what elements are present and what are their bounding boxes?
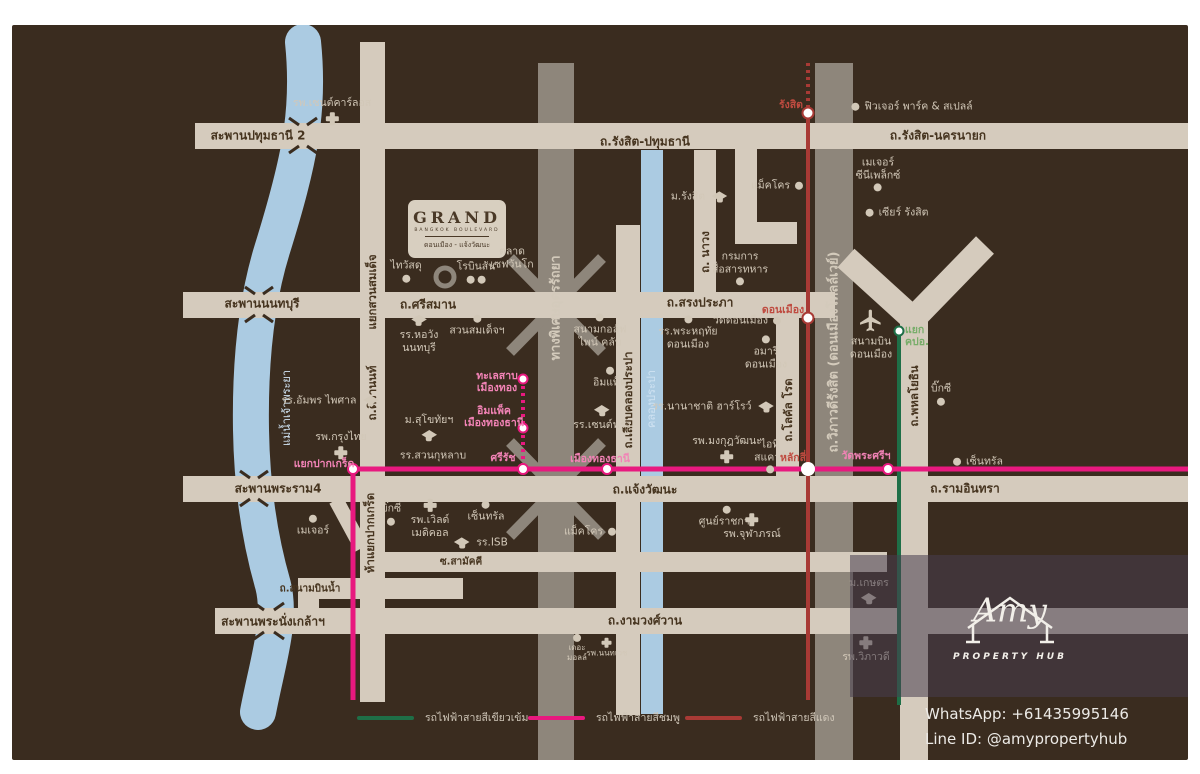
road-label-phahonyothin: ถ.พหลโยธิน: [905, 365, 923, 426]
poi-wat-donmueang: วัดดอนเมือง: [713, 315, 781, 328]
poi-major-left: เมเจอร์: [297, 515, 329, 538]
hospital-cross-icon: [334, 446, 347, 459]
graduation-cap-icon: [757, 401, 776, 414]
poi-mongkut: รพ.มงกุฎวัฒนะ: [692, 435, 762, 463]
place-dot-icon: [736, 278, 744, 286]
poi-nonthavej: รพ.นนทเวช: [587, 638, 628, 659]
road-label-rangsit-pathumthani: ถ.รังสิต-ปทุมธานี: [600, 133, 690, 152]
place-dot-icon: [937, 397, 945, 405]
graduation-cap-icon: [593, 404, 612, 417]
river-label-chao-phraya: แม่น้ำเจ้าพระยา: [278, 370, 296, 446]
poi-save-one-go: ตลาด เซฟวันโก: [490, 245, 533, 270]
poi-the-mall: เดอะ มอลล์: [567, 634, 587, 662]
legend-label: รถไฟฟ้าสายสีชมพู: [596, 709, 680, 726]
poi-amari: อมารี ดอนเมือง: [745, 335, 787, 370]
poi-krungthai: รพ.กรุงไทย: [315, 431, 366, 459]
poi-major-cineplex: เมเจอร์ ซีนีเพล็กซ์: [856, 156, 901, 191]
place-dot-icon: [473, 315, 481, 323]
place-dot-icon: [953, 458, 961, 466]
poi-st-francis: รร.เซนต์ฟรัง: [573, 404, 631, 432]
legend-label: รถไฟฟ้าสายสีแดง: [753, 709, 835, 726]
graduation-cap-icon: [710, 191, 729, 204]
pink-line-swatch-icon: [528, 716, 585, 720]
poi-suan-somdet: สวนสมเด็จฯ: [449, 315, 504, 338]
road-label-songprapha: ถ.สรงประภา: [667, 294, 734, 313]
brand-divider: [425, 236, 489, 237]
station-label-yaek-kpo: แยก คปอ.: [905, 324, 929, 348]
road-label-sanambin-nam: ถ.สนามบินน้ำ: [280, 582, 341, 597]
station-label-wat-phra-si: วัดพระศรีฯ: [841, 450, 890, 462]
hospital-cross-icon: [746, 513, 759, 526]
place-dots-icon: [467, 275, 486, 283]
road-label-ramindra: ถ.รามอินทรา: [930, 480, 999, 499]
poi-amphorn: รร.อัมพร ไพศาล: [282, 395, 381, 408]
road-label-srisaman: ถ.ศรีสมาน: [400, 296, 456, 315]
poi-big-c-right: บิ๊กซี: [931, 383, 951, 406]
poi-impact: อิมแพ็ค: [593, 367, 627, 390]
hospital-cross-icon: [721, 450, 734, 463]
poi-future-park: ฟิวเจอร์ พาร์ค & สเปลล์: [851, 101, 972, 114]
station-label-impact-mueang-thong: อิมแพ็ค เมืองทองธานี: [464, 405, 524, 429]
place-dot-icon: [608, 528, 616, 536]
legend-label: รถไฟฟ้าสายสีเขียวเข้ม: [425, 709, 528, 726]
road-label-yaek-suan-somdet: แยกสวนสมเด็จ: [363, 254, 381, 329]
hospital-cross-icon: [423, 499, 436, 512]
road-label-tiwanon: ถ.ติวานนท์: [363, 365, 381, 420]
place-dot-icon: [482, 501, 490, 509]
hospital-cross-icon: [325, 112, 338, 125]
poi-chulabhorn: รพ.จุฬาภรณ์: [723, 513, 780, 541]
station-label-si-rat: ศรีรัช: [490, 452, 515, 464]
poi-harrow: รร.นานาชาติ ฮาร์โรว์: [652, 401, 775, 414]
place-dot-icon: [766, 466, 774, 474]
road-label-chaengwatthana: ถ.แจ้งวัฒนะ: [613, 481, 678, 500]
station-label-lake-mueang-thong: ทะเลสาบ เมืองทอง: [476, 370, 518, 394]
station-label-lak-si: หลักสี่: [780, 452, 806, 464]
hospital-cross-icon: [602, 638, 612, 648]
road-label-phranangklao-bridge: สะพานพระนั่งเกล้าฯ: [221, 613, 325, 632]
contact-whatsapp: WhatsApp: +61435995146: [925, 705, 1129, 723]
graduation-cap-icon: [452, 537, 471, 550]
road-label-rangsit-nakhonnayok: ถ.รังสิต-นครนายก: [890, 127, 986, 146]
station-label-pak-kret: แยกปากเกร็ด: [294, 458, 355, 470]
poi-makro-bottom: แม็คโคร: [564, 526, 616, 539]
graduation-cap-icon: [361, 395, 380, 408]
legend-item-green-line: รถไฟฟ้าสายสีเขียวเข้ม: [357, 709, 528, 726]
place-dot-icon: [596, 313, 604, 321]
poi-m-rangsit: ม.รังสิต: [671, 191, 729, 204]
poi-suan-kularb: รร.สวนกุหลาบ: [400, 450, 466, 463]
place-dot-icon: [851, 103, 859, 111]
road-label-ngamwongwan: ถ.งามวงศ์วาน: [608, 612, 682, 631]
poi-central-right: เซ็นทรัล: [953, 456, 1003, 469]
station-label-mueang-thong-thani: เมืองทองธานี: [570, 453, 630, 465]
green-line-swatch-icon: [357, 716, 414, 720]
brand-subtitle: BANGKOK BOULEVARD: [414, 228, 499, 233]
place-dot-icon: [387, 517, 395, 525]
road-label-pathumthani2: สะพานปทุมธานี 2: [211, 127, 306, 146]
road-label-hayaek-pakkret: ห้าแยกปากเกร็ด: [361, 493, 379, 573]
poi-sukhothai: ม.สุโขทัยฯ: [405, 414, 453, 442]
poi-makro-top: แม็คโคร: [751, 180, 803, 193]
poi-horwang: รร.หอวัง นนทบุรี: [400, 314, 439, 354]
poi-thai-watsadu: ไทวัสดุ: [390, 260, 421, 283]
poi-phra-haruethai: รร.พระหฤทัย ดอนเมือง: [658, 315, 717, 350]
poi-big-c-left: บิ๊กซี: [381, 503, 401, 526]
road-label-vibhavadi-tollway: ถ.วิภาวดีรังสิต (ดอนเมืองโทลล์เวย์): [824, 252, 845, 453]
station-label-rangsit: รังสิต: [779, 99, 803, 111]
poi-isb: รร.ISB: [452, 537, 508, 550]
place-dot-icon: [606, 367, 614, 375]
place-dot-icon: [795, 182, 803, 190]
airplane-icon: [858, 307, 884, 333]
poi-pine-golf: สนามกอล์ฟ ไพน์ คลับ: [574, 313, 627, 348]
poi-military-comm: กรมการ สื่อสารทหาร: [712, 250, 768, 285]
poi-st-carlos: รพ.เซนต์คาร์ลอส: [293, 97, 371, 125]
legend-item-pink-line: รถไฟฟ้าสายสีชมพู: [528, 709, 680, 726]
place-dot-icon: [573, 634, 581, 642]
graduation-cap-icon: [420, 429, 439, 442]
brand-tagline: ดอนเมือง - แจ้งวัฒนะ: [424, 240, 490, 251]
road-label-rama4-bridge: สะพานพระราม4: [235, 480, 322, 499]
poi-zeer-rangsit: เซียร์ รังสิต: [866, 207, 929, 220]
station-label-don-mueang: ดอนเมือง: [762, 304, 804, 316]
watermark-name: Amy: [973, 591, 1047, 630]
road-label-local-road: ถ.โลคัล โรด: [779, 378, 797, 441]
poi-donmueang-airport: สนามบิน ดอนเมือง: [850, 307, 892, 360]
place-dot-icon: [762, 335, 770, 343]
road-label-nonthaburi-bridge: สะพานนนทบุรี: [225, 295, 300, 314]
brand-name: GRAND: [413, 208, 501, 227]
canal-label-klong-prapa: คลองประปา: [643, 370, 661, 428]
place-dot-icon: [866, 209, 874, 217]
contact-line-id: Line ID: @amypropertyhub: [925, 730, 1127, 748]
place-dot-icon: [402, 274, 410, 282]
watermark-subtitle: PROPERTY HUB: [940, 652, 1080, 662]
road-label-udon-ratthaya: ทางพิเศษอุดรรัถยา: [546, 255, 567, 360]
place-dot-icon: [874, 184, 882, 192]
map-poster: { "brand_card": {"name": "GRAND", "subti…: [0, 0, 1200, 774]
poi-central-left: เซ็นทรัล: [468, 501, 505, 524]
place-dot-icon: [773, 317, 781, 325]
graduation-cap-icon: [410, 314, 429, 327]
place-dot-icon: [684, 315, 692, 323]
place-dot-icon: [309, 515, 317, 523]
red-line-swatch-icon: [685, 716, 742, 720]
legend-item-red-line: รถไฟฟ้าสายสีแดง: [685, 709, 835, 726]
road-label-samakkhi: ซ.สามัคคี: [440, 555, 482, 570]
poi-world-medical: รพ.เวิลด์ เมดิคอล: [411, 499, 450, 539]
watermark-logo: Amy PROPERTY HUB: [940, 566, 1080, 674]
